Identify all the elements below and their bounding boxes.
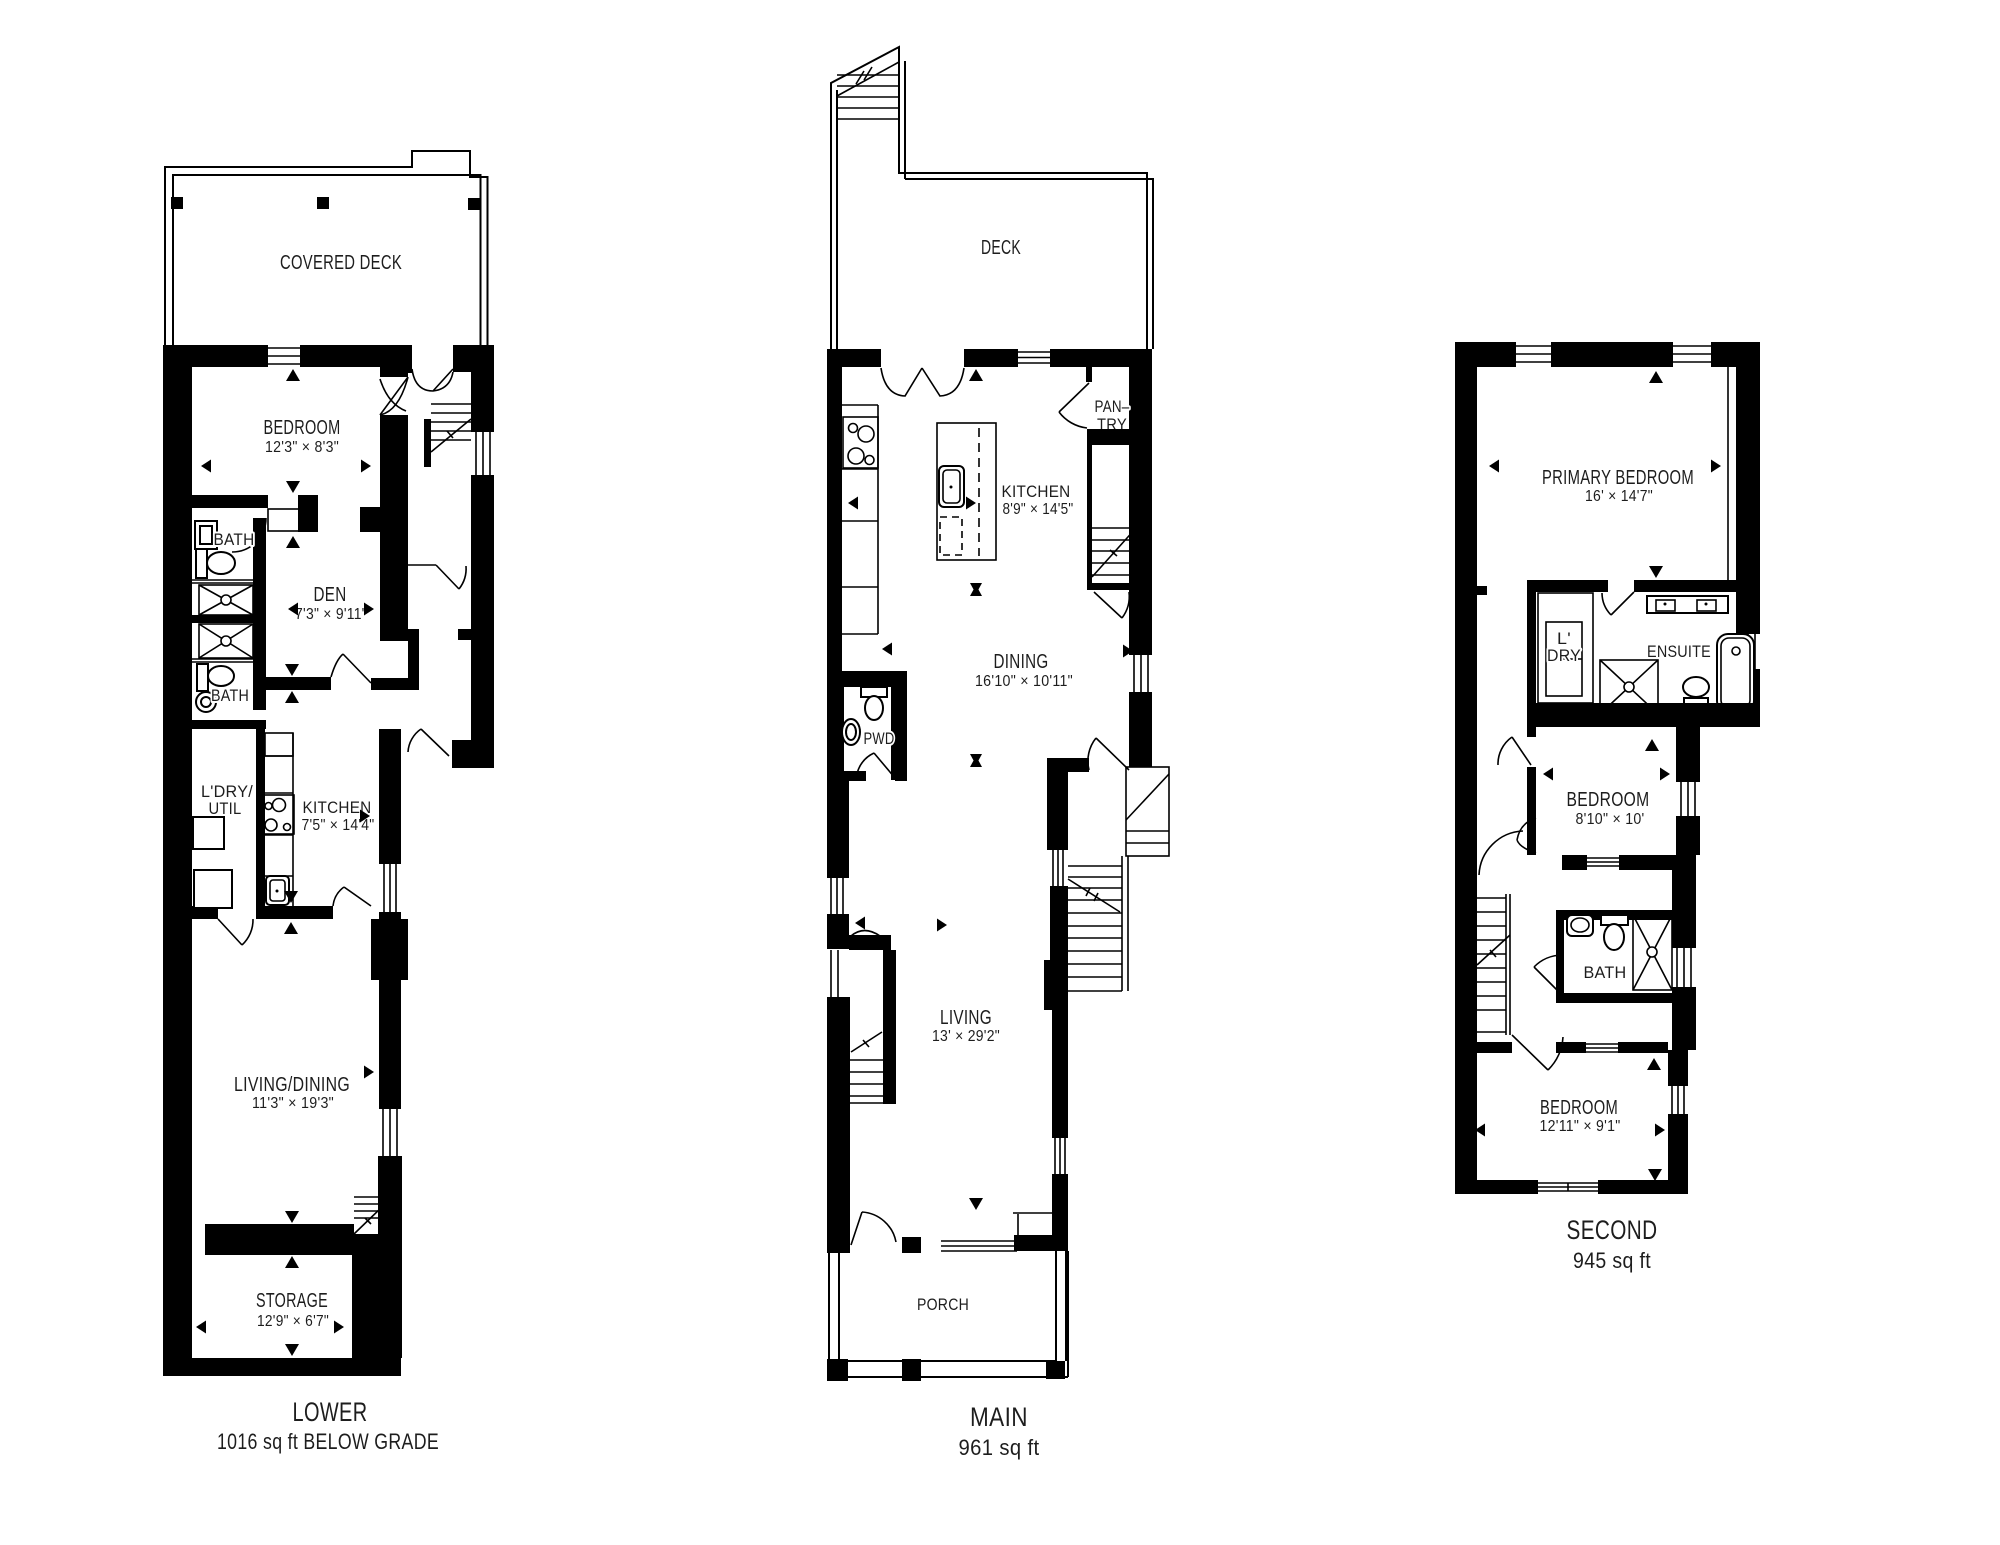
svg-text:13' × 29'2": 13' × 29'2": [932, 1028, 1000, 1045]
svg-text:MAIN: MAIN: [970, 1402, 1028, 1432]
svg-text:PORCH: PORCH: [917, 1295, 969, 1314]
svg-text:7'3" × 9'11": 7'3" × 9'11": [295, 606, 367, 623]
svg-text:KITCHEN: KITCHEN: [1002, 482, 1071, 501]
svg-text:DECK: DECK: [981, 237, 1021, 259]
svg-text:BATH: BATH: [1584, 963, 1627, 982]
svg-text:LIVING/DINING: LIVING/DINING: [234, 1074, 350, 1096]
svg-text:UTIL: UTIL: [209, 799, 242, 818]
svg-text:DRY: DRY: [1547, 646, 1581, 665]
svg-text:ENSUITE: ENSUITE: [1647, 642, 1711, 661]
svg-text:BATH: BATH: [214, 530, 255, 549]
svg-text:11'3" × 19'3": 11'3" × 19'3": [252, 1095, 334, 1112]
svg-text:961 sq ft: 961 sq ft: [959, 1435, 1040, 1460]
svg-text:BEDROOM: BEDROOM: [1540, 1097, 1618, 1119]
svg-text:945 sq ft: 945 sq ft: [1573, 1248, 1651, 1273]
svg-text:12'3" × 8'3": 12'3" × 8'3": [265, 439, 339, 456]
svg-text:PAN–: PAN–: [1095, 397, 1130, 416]
svg-text:8'9" × 14'5": 8'9" × 14'5": [1003, 501, 1074, 518]
svg-text:16' × 14'7": 16' × 14'7": [1585, 488, 1653, 505]
svg-text:16'10" × 10'11": 16'10" × 10'11": [975, 673, 1073, 690]
svg-text:8'10" × 10': 8'10" × 10': [1576, 811, 1645, 828]
svg-text:PWD: PWD: [864, 729, 895, 748]
svg-text:BEDROOM: BEDROOM: [1567, 789, 1650, 811]
svg-text:BATH: BATH: [211, 686, 249, 705]
svg-text:STORAGE: STORAGE: [256, 1290, 328, 1312]
svg-text:12'9" × 6'7": 12'9" × 6'7": [257, 1313, 329, 1330]
svg-text:LIVING: LIVING: [940, 1007, 992, 1029]
svg-text:COVERED DECK: COVERED DECK: [280, 252, 402, 274]
svg-text:PRIMARY BEDROOM: PRIMARY BEDROOM: [1542, 467, 1694, 489]
svg-text:LOWER: LOWER: [293, 1397, 368, 1427]
svg-text:1016 sq ft BELOW GRADE: 1016 sq ft BELOW GRADE: [217, 1429, 439, 1454]
svg-text:SECOND: SECOND: [1567, 1215, 1658, 1245]
svg-text:DEN: DEN: [314, 584, 347, 606]
svg-text:BEDROOM: BEDROOM: [264, 417, 341, 439]
svg-text:12'11" × 9'1": 12'11" × 9'1": [1540, 1118, 1621, 1135]
svg-text:DINING: DINING: [994, 651, 1049, 673]
